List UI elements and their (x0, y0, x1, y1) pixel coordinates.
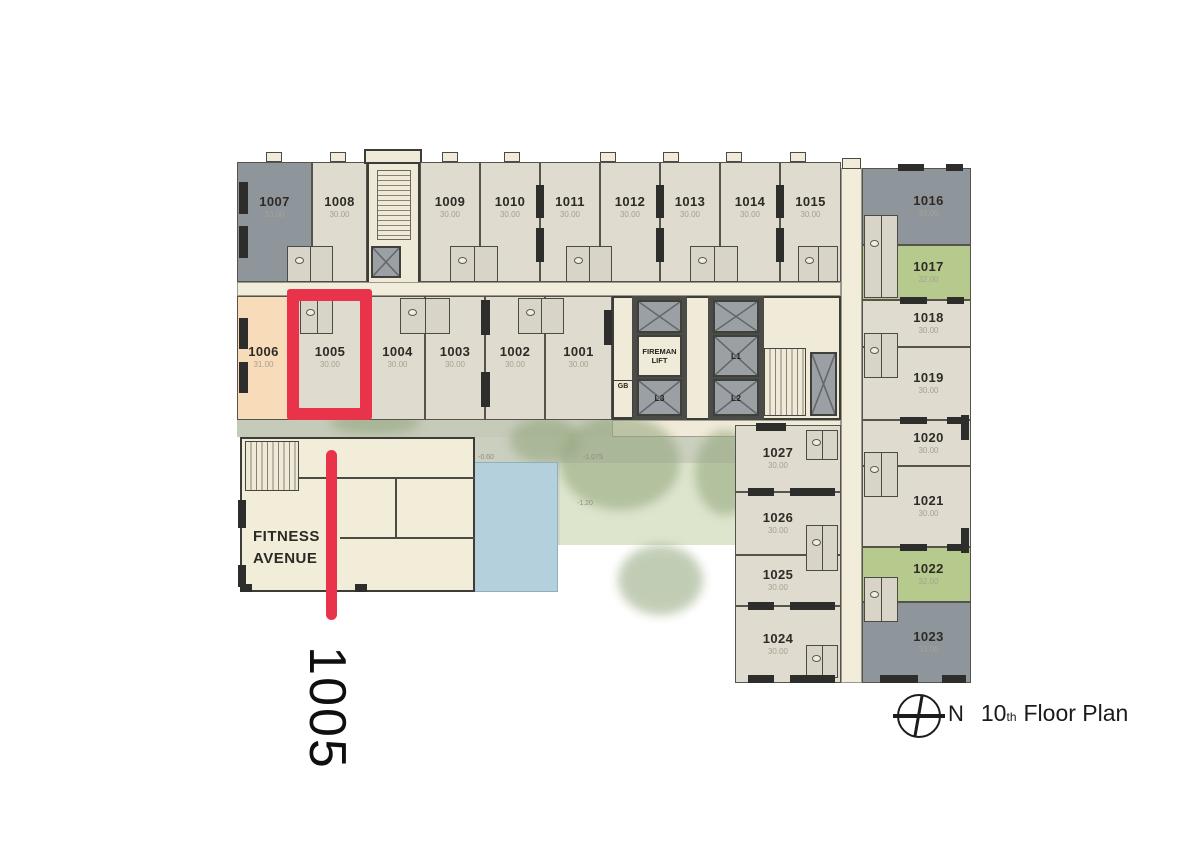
room-area: 30.00 (329, 210, 349, 220)
room-number: 1004 (382, 345, 413, 359)
wall-column (536, 228, 544, 262)
service-shaft (371, 246, 401, 278)
room-area: 30.00 (768, 583, 788, 593)
lift-shaft (713, 300, 759, 333)
wall-column (790, 488, 835, 496)
fitness-line2: AVENUE (253, 548, 320, 570)
bathroom (806, 645, 838, 678)
room-area: 30.00 (620, 210, 640, 220)
wall-column (961, 415, 969, 440)
wall-column (942, 675, 966, 683)
room-number: 1026 (763, 511, 794, 525)
wall-column (900, 297, 927, 304)
room-area: 30.00 (768, 647, 788, 657)
room-number: 1022 (913, 562, 944, 576)
level-label: -0.60 (478, 454, 494, 461)
fireman-lift-label: FIREMAN (639, 347, 680, 356)
bathroom (566, 246, 612, 282)
wall-column (481, 372, 490, 407)
room-number: 1021 (913, 494, 944, 508)
room-area: 33.00 (264, 210, 284, 220)
parapet-bump (330, 152, 346, 162)
highlight-line (326, 450, 337, 620)
room-number: 1015 (795, 195, 826, 209)
wall-column (880, 675, 918, 683)
lift-l1: L1 (713, 335, 759, 377)
pool (472, 462, 558, 592)
gb-room: GB (613, 380, 633, 418)
core-stairs (764, 348, 806, 416)
room-number: 1002 (500, 345, 531, 359)
room-number: 1013 (675, 195, 706, 209)
parapet-bump (663, 152, 679, 162)
wall-column (756, 423, 786, 431)
wall-column (238, 500, 246, 528)
tree (510, 418, 580, 463)
room-area: 30.00 (500, 210, 520, 220)
room-area: 30.00 (918, 509, 938, 519)
room-area: 30.00 (800, 210, 820, 220)
room-number: 1018 (913, 311, 944, 325)
interior-wall (340, 537, 475, 539)
bathroom (798, 246, 838, 282)
room-area: 30.00 (445, 360, 465, 370)
bathroom (864, 215, 898, 298)
room-number: 1003 (440, 345, 471, 359)
floor-plan-label: Floor Plan (1024, 700, 1129, 727)
room-number: 1011 (555, 195, 585, 209)
room-number: 1027 (763, 446, 794, 460)
room-area: 30.00 (768, 526, 788, 536)
room-number: 1023 (913, 630, 944, 644)
room-area: 30.00 (768, 461, 788, 471)
lift-l2: L2 (713, 379, 759, 416)
room-number: 1008 (324, 195, 355, 209)
bathroom (287, 246, 333, 282)
room-number: 1019 (913, 371, 944, 385)
highlight-rectangle (287, 289, 372, 420)
room-area: 30.00 (918, 446, 938, 456)
parapet-bump (442, 152, 458, 162)
room-area: 30.00 (680, 210, 700, 220)
wall-column (239, 226, 248, 258)
room-area: 32.00 (918, 275, 938, 285)
wall-column (790, 675, 835, 683)
room-number: 1020 (913, 431, 944, 445)
wall-column (961, 528, 969, 553)
room-area: 30.00 (387, 360, 407, 370)
room-number: 1001 (563, 345, 594, 359)
room-callout-1005: 1005 (297, 646, 357, 770)
gb-label: GB (618, 383, 629, 390)
north-label: N (948, 701, 964, 727)
stair-bump (364, 149, 422, 164)
wall-column (776, 185, 784, 218)
wall-column (481, 300, 490, 335)
room-number: 1007 (259, 195, 290, 209)
room-area: 30.00 (505, 360, 525, 370)
wall-column (898, 164, 924, 171)
room-area: 30.00 (918, 386, 938, 396)
lift-l3-label: L3 (639, 393, 680, 403)
stairs (377, 170, 411, 240)
wall-column (656, 228, 664, 262)
parapet-bump (600, 152, 616, 162)
wall-column (947, 297, 964, 304)
room-number: 1006 (248, 345, 279, 359)
room-number: 1009 (435, 195, 466, 209)
parapet-bump (726, 152, 742, 162)
lift-shaft (810, 352, 837, 416)
bathroom (806, 525, 838, 571)
fitness-line1: FITNESS (253, 526, 320, 548)
fireman-lift-label: LIFT (639, 356, 680, 365)
bathroom (806, 430, 838, 460)
bathroom (864, 577, 898, 622)
tree (560, 415, 680, 510)
wall-column (239, 182, 248, 214)
parapet-bump (266, 152, 282, 162)
floor-plan-title: N 10 th Floor Plan (948, 700, 1128, 727)
ordinal-suffix: th (1006, 710, 1016, 724)
tree (618, 545, 703, 615)
fitness-stairs (245, 441, 299, 491)
bathroom (450, 246, 498, 282)
fitness-avenue-label: FITNESS AVENUE (253, 526, 320, 570)
corridor (841, 168, 862, 683)
room-area: 32.00 (918, 577, 938, 587)
bathroom (400, 298, 450, 334)
wall-column (239, 362, 248, 393)
wall-column (748, 675, 774, 683)
wall-column (355, 584, 367, 592)
fireman-lift: FIREMAN LIFT (637, 335, 682, 377)
room-area: 30.00 (568, 360, 588, 370)
room-number: 1025 (763, 568, 794, 582)
room-area: 30.00 (560, 210, 580, 220)
lift-l2-label: L2 (715, 393, 757, 403)
wall-column (536, 185, 544, 218)
floor-number: 10 (981, 700, 1007, 727)
room-number: 1024 (763, 632, 794, 646)
wall-column (776, 228, 784, 262)
room-number: 1017 (913, 260, 944, 274)
bathroom (864, 452, 898, 497)
wall-column (946, 164, 963, 171)
wall-column (900, 417, 927, 424)
room-area: 33.00 (918, 645, 938, 655)
wall-column (748, 488, 774, 496)
room-area: 30.00 (440, 210, 460, 220)
room-1006: 1006 31.00 (237, 296, 290, 420)
level-label: -1.075 (583, 454, 603, 461)
bathroom (518, 298, 564, 334)
wall-column (900, 544, 927, 551)
room-number: 1016 (913, 194, 944, 208)
room-area: 31.00 (253, 360, 273, 370)
wall-column (656, 185, 664, 218)
lift-l1-label: L1 (715, 351, 757, 361)
level-label: -1.20 (577, 500, 593, 507)
parapet-bump (504, 152, 520, 162)
wall-column (239, 318, 248, 349)
lift-shaft (637, 300, 682, 333)
room-number: 1012 (615, 195, 646, 209)
room-area: 30.00 (918, 326, 938, 336)
room-area: 30.00 (740, 210, 760, 220)
bathroom (864, 333, 898, 378)
wall-column (790, 602, 835, 610)
bathroom (690, 246, 738, 282)
room-number: 1014 (735, 195, 766, 209)
wall-column (748, 602, 774, 610)
interior-wall (395, 477, 397, 539)
room-number: 1010 (495, 195, 526, 209)
wall-column (240, 584, 252, 592)
parapet-bump (790, 152, 806, 162)
room-area: 33.00 (918, 209, 938, 219)
parapet-bump (842, 158, 861, 169)
floor-plan: -0.60 -1.075 -1.20 1007 33.00 1008 30.00… (0, 0, 1200, 848)
lift-l3: L3 (637, 379, 682, 416)
